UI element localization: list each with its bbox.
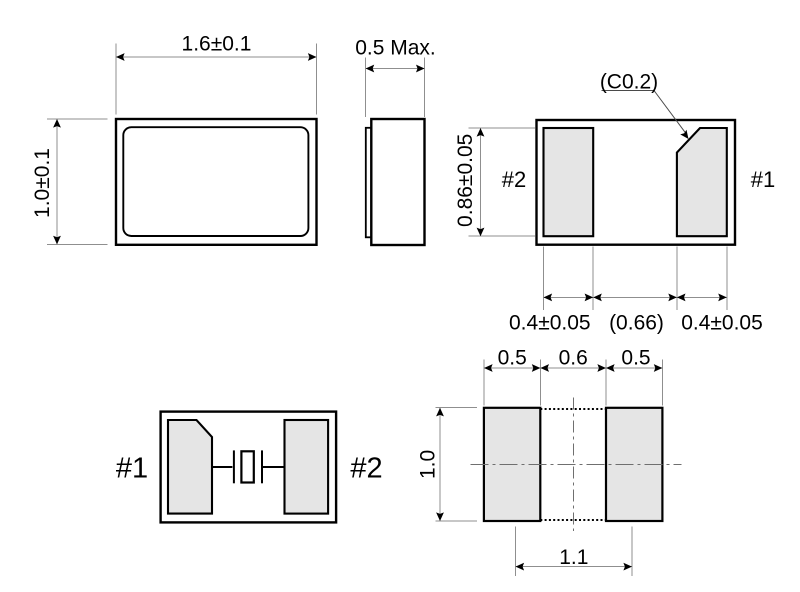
svg-text:0.5 Max.: 0.5 Max. bbox=[355, 37, 436, 60]
svg-text:#2: #2 bbox=[350, 453, 382, 485]
svg-text:0.5: 0.5 bbox=[498, 347, 527, 370]
svg-text:1.0: 1.0 bbox=[417, 450, 440, 479]
svg-text:0.4±0.05: 0.4±0.05 bbox=[681, 312, 763, 335]
svg-text:0.6: 0.6 bbox=[559, 347, 588, 370]
svg-text:1.1: 1.1 bbox=[559, 546, 588, 569]
svg-text:1.0±0.1: 1.0±0.1 bbox=[31, 148, 54, 218]
svg-text:#1: #1 bbox=[751, 167, 775, 192]
svg-text:0.5: 0.5 bbox=[621, 347, 650, 370]
svg-text:#2: #2 bbox=[502, 167, 526, 192]
svg-text:1.6±0.1: 1.6±0.1 bbox=[182, 33, 252, 56]
svg-text:0.86±0.05: 0.86±0.05 bbox=[454, 134, 477, 227]
svg-text:(C0.2): (C0.2) bbox=[600, 71, 658, 94]
svg-text:(0.66): (0.66) bbox=[609, 312, 664, 335]
svg-text:0.4±0.05: 0.4±0.05 bbox=[509, 312, 591, 335]
svg-text:#1: #1 bbox=[116, 453, 148, 485]
